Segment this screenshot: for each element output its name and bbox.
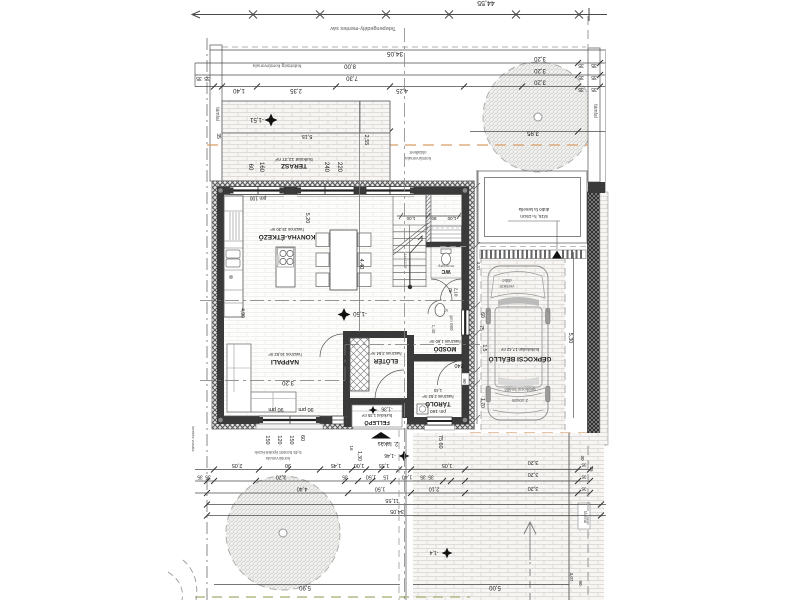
svg-text:35: 35 [204, 75, 210, 81]
svg-text:35: 35 [205, 474, 211, 480]
svg-text:NAPPALI: NAPPALI [271, 358, 299, 365]
svg-text:dübö: dübö [502, 278, 512, 283]
svg-text:35: 35 [578, 74, 584, 80]
svg-text:35: 35 [428, 474, 434, 480]
svg-text:90: 90 [431, 216, 437, 221]
svg-text:5,90: 5,90 [299, 584, 311, 590]
svg-text:TÁROLÓ: TÁROLÓ [425, 400, 451, 408]
svg-text:kontúrvonala: kontúrvonala [265, 456, 290, 461]
svg-text:15: 15 [383, 474, 389, 480]
svg-text:1,40: 1,40 [233, 87, 245, 93]
svg-text:2,05: 2,05 [232, 462, 243, 468]
svg-text:4,25: 4,25 [396, 87, 408, 93]
svg-text:3,95: 3,95 [527, 130, 539, 136]
svg-text:2,55: 2,55 [363, 135, 369, 146]
svg-text:támfal: támfal [583, 511, 588, 523]
svg-text:240: 240 [323, 162, 329, 173]
svg-text:30: 30 [580, 455, 585, 461]
svg-text:3,20: 3,20 [282, 379, 294, 385]
svg-text:60: 60 [437, 442, 443, 448]
svg-text:60: 60 [479, 312, 485, 318]
svg-text:TERASZ: TERASZ [281, 162, 307, 169]
svg-text:hasznos 2,52 m²: hasznos 2,52 m² [422, 394, 454, 399]
svg-text:35: 35 [196, 75, 202, 81]
svg-text:-1,36: -1,36 [381, 406, 393, 412]
svg-text:2. lakás: 2. lakás [378, 440, 399, 446]
svg-text:34,05: 34,05 [386, 50, 403, 57]
svg-text:burkolat 12,37 m²: burkolat 12,37 m² [275, 156, 313, 162]
svg-text:1,05: 1,05 [442, 462, 453, 468]
svg-text:1,00: 1,00 [406, 216, 415, 221]
svg-text:160: 160 [258, 162, 264, 173]
svg-text:4,90: 4,90 [239, 308, 245, 318]
svg-text:35: 35 [589, 466, 594, 472]
svg-text:75: 75 [478, 325, 484, 331]
svg-text:240: 240 [454, 362, 463, 368]
svg-text:dübö fa lamella: dübö fa lamella [518, 207, 549, 212]
svg-text:34,05: 34,05 [390, 508, 404, 514]
svg-text:Telepengedély-mentes sáv: Telepengedély-mentes sáv [330, 25, 396, 31]
svg-text:támfal: támfal [592, 104, 598, 118]
svg-text:5,00: 5,00 [489, 584, 501, 590]
svg-text:KONYHA-ÉTKEZŐ: KONYHA-ÉTKEZŐ [259, 233, 316, 242]
svg-text:pm 100: pm 100 [249, 195, 266, 201]
svg-text:57: 57 [443, 308, 448, 313]
svg-text:35: 35 [581, 463, 587, 468]
svg-text:pm 080: pm 080 [449, 315, 454, 331]
svg-text:2,10: 2,10 [454, 288, 459, 297]
svg-text:16: 16 [349, 445, 354, 451]
svg-text:1,50: 1,50 [375, 486, 386, 492]
svg-text:8,00: 8,00 [344, 63, 356, 69]
svg-text:1,40: 1,40 [433, 388, 442, 393]
svg-text:3,20: 3,20 [534, 55, 546, 61]
svg-text:1,00: 1,00 [354, 462, 365, 468]
svg-text:150: 150 [264, 435, 270, 444]
svg-text:35: 35 [197, 474, 203, 480]
svg-text:90 pm: 90 pm [298, 406, 314, 412]
svg-text:3,20: 3,20 [528, 471, 539, 477]
svg-text:75: 75 [437, 435, 443, 441]
svg-text:3,20: 3,20 [534, 67, 546, 73]
svg-text:GÉPKOCSI BEÁLLÓ: GÉPKOCSI BEÁLLÓ [489, 355, 552, 364]
svg-text:5/15, h=15cm: 5/15, h=15cm [520, 214, 548, 219]
svg-text:5,15: 5,15 [302, 133, 313, 139]
svg-text:1,40: 1,40 [431, 325, 436, 334]
svg-text:kerítés vonala: kerítés vonala [191, 427, 196, 453]
svg-text:75: 75 [448, 287, 453, 293]
svg-text:1,45: 1,45 [331, 462, 342, 468]
svg-text:1,5: 1,5 [481, 345, 487, 352]
svg-text:hasznos 1,60 m²: hasznos 1,60 m² [429, 339, 461, 344]
svg-text:kontúrvonala: kontúrvonala [405, 156, 431, 161]
svg-text:4,40: 4,40 [297, 486, 308, 492]
svg-text:-1,51: -1,51 [250, 116, 264, 122]
svg-text:11,55: 11,55 [385, 497, 398, 503]
svg-text:2,10x05: 2,10x05 [511, 398, 528, 403]
svg-text:35: 35 [578, 86, 584, 92]
svg-text:35: 35 [591, 62, 597, 68]
svg-text:hasznos 3,54 m²: hasznos 3,54 m² [370, 351, 402, 356]
svg-text:120: 120 [276, 435, 282, 444]
svg-text:5,45 bontott épületrészek: 5,45 bontott épületrészek [254, 450, 302, 455]
svg-text:3,20: 3,20 [528, 459, 539, 465]
svg-text:-1,46: -1,46 [384, 452, 396, 458]
svg-text:14x17/29: 14x17/29 [403, 254, 407, 269]
svg-text:35: 35 [578, 62, 584, 68]
svg-text:35: 35 [342, 474, 348, 480]
svg-text:2,10: 2,10 [429, 486, 440, 492]
svg-text:burkolat 1,35 m²: burkolat 1,35 m² [361, 413, 392, 418]
svg-text:MOSDÓ: MOSDÓ [433, 345, 456, 353]
svg-text:1,50: 1,50 [366, 474, 377, 480]
svg-text:35: 35 [591, 74, 597, 80]
svg-text:fedettség kontúrvonala: fedettség kontúrvonala [252, 63, 301, 69]
svg-text:1,00: 1,00 [447, 216, 456, 221]
svg-text:hasznos 15,30 m²: hasznos 15,30 m² [270, 227, 304, 232]
svg-text:35: 35 [420, 474, 426, 480]
svg-text:ELŐTÉR: ELŐTÉR [373, 357, 398, 365]
svg-text:150: 150 [288, 435, 294, 444]
svg-text:4,40: 4,40 [358, 259, 364, 270]
svg-text:ventikör: ventikör [499, 284, 514, 289]
svg-text:hasznos 16,52 m²: hasznos 16,52 m² [268, 352, 302, 357]
svg-text:35: 35 [591, 86, 597, 92]
svg-text:pm 160: pm 160 [430, 408, 446, 414]
svg-text:35: 35 [581, 475, 587, 480]
svg-text:5,20: 5,20 [304, 213, 310, 224]
svg-text:3,07: 3,07 [569, 573, 574, 582]
svg-text:220: 220 [336, 162, 342, 173]
svg-text:7,30: 7,30 [346, 75, 358, 81]
svg-text:gépkocsi beálló: gépkocsi beálló [504, 387, 536, 392]
svg-text:1,30: 1,30 [356, 451, 362, 461]
svg-text:90: 90 [285, 462, 291, 468]
svg-text:60: 60 [247, 164, 253, 171]
svg-text:2,35: 2,35 [290, 87, 302, 93]
svg-text:oldalkert: oldalkert [409, 150, 427, 155]
svg-text:90: 90 [462, 378, 467, 384]
svg-text:44,55: 44,55 [477, 0, 495, 6]
svg-text:1,55: 1,55 [379, 462, 390, 468]
svg-text:60: 60 [299, 435, 305, 441]
svg-text:1,40: 1,40 [402, 474, 413, 480]
svg-text:FELLEPŐ: FELLEPŐ [364, 419, 390, 426]
svg-text:90: 90 [578, 580, 583, 586]
svg-text:3,20: 3,20 [534, 79, 546, 85]
svg-text:5,30: 5,30 [567, 333, 573, 344]
svg-text:támfal: támfal [214, 107, 220, 121]
svg-text:3,20: 3,20 [528, 485, 539, 491]
svg-text:1,70: 1,70 [479, 398, 485, 408]
svg-text:90 pm: 90 pm [268, 406, 284, 412]
svg-text:mosógép: mosógép [438, 264, 454, 268]
svg-text:3,70: 3,70 [276, 474, 287, 480]
svg-text:-1,4: -1,4 [429, 549, 438, 555]
svg-text:burkolatlan 17,42 m²: burkolatlan 17,42 m² [500, 347, 539, 352]
svg-text:35: 35 [215, 133, 221, 139]
svg-text:35: 35 [581, 487, 587, 492]
